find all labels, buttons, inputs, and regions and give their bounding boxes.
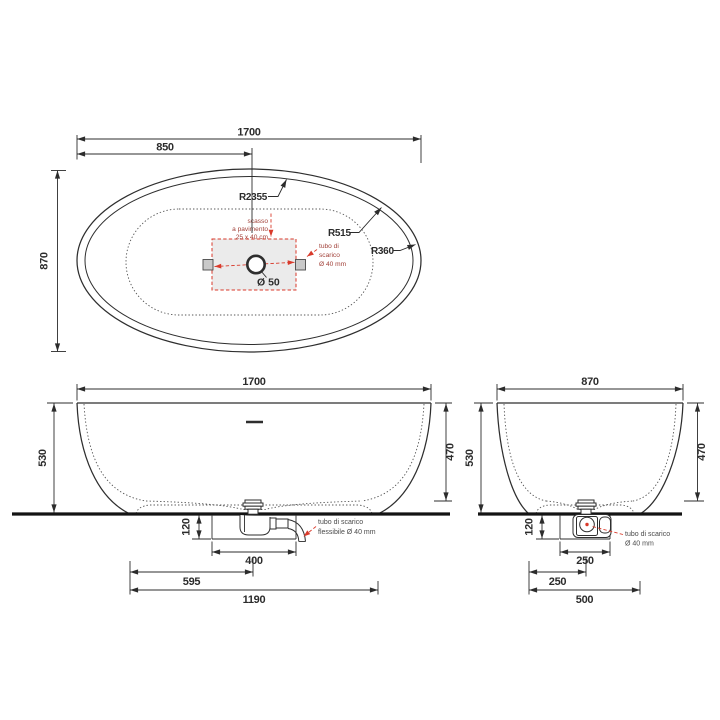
radius-side-leader <box>268 180 287 197</box>
side-dim-inner-depth: 470 <box>684 403 708 501</box>
front-drain-waste <box>243 500 263 514</box>
top-dim-depth: 870 <box>39 171 67 352</box>
radius-inner-leader <box>350 208 382 233</box>
front-dim-height-label: 530 <box>37 449 49 467</box>
side-dim-width: 870 <box>497 376 683 401</box>
bathtub-technical-drawing: Ø 50 scasso a pavimento 25 x 40 cm tubo … <box>0 0 720 720</box>
side-dim-height-label: 530 <box>464 449 476 467</box>
top-dim-width-label: 1700 <box>237 127 260 139</box>
front-dim-width: 1700 <box>77 376 431 401</box>
drain-hole <box>247 256 264 273</box>
front-inner-right <box>362 404 424 501</box>
side-inner-right <box>633 404 676 501</box>
side-drain-waste <box>576 500 596 514</box>
drain-pipe-left-marker <box>203 260 213 271</box>
drain-note-line1: tubo di <box>319 243 339 250</box>
top-dim-half-width-label: 850 <box>156 142 174 154</box>
side-dim-recess-depth: 120 <box>524 516 560 540</box>
drain-point-marker <box>585 523 588 526</box>
side-dim-recess-depth-label: 120 <box>524 518 536 536</box>
front-dim-recess-depth: 120 <box>181 516 212 540</box>
front-right-profile <box>378 403 431 514</box>
side-left-profile <box>497 403 529 514</box>
side-dim-height: 530 <box>464 403 493 513</box>
front-dim-base-width-label: 1190 <box>243 594 266 606</box>
hose-note-line1: tubo di scarico <box>318 519 363 526</box>
hose-note-leader <box>304 527 317 537</box>
top-view: Ø 50 scasso a pavimento 25 x 40 cm tubo … <box>39 127 422 353</box>
drain-hole-label: Ø 50 <box>257 277 280 289</box>
side-drain-note-line2: Ø 40 mm <box>625 541 654 548</box>
side-dim-base-width: 500 <box>529 581 640 606</box>
side-dim-drain-offset-label: 250 <box>549 576 567 588</box>
side-dim-recess-width: 250 <box>560 542 610 568</box>
front-view: tubo di scarico flessibile Ø 40 mm 1700 … <box>12 376 457 606</box>
front-dim-inner-depth-label: 470 <box>445 443 457 461</box>
drawing-canvas: Ø 50 scasso a pavimento 25 x 40 cm tubo … <box>0 0 720 720</box>
side-dim-width-label: 870 <box>581 376 599 388</box>
top-dim-depth-label: 870 <box>39 252 51 270</box>
front-dim-recess-depth-label: 120 <box>181 518 193 536</box>
drain-note-line3: Ø 40 mm <box>319 261 347 268</box>
front-dim-drain-offset-label: 595 <box>183 576 201 588</box>
side-siphon-trap <box>573 515 611 538</box>
radius-inner-label: R515 <box>328 228 351 239</box>
recess-note-line2: a pavimento <box>232 226 268 233</box>
side-right-profile <box>640 403 683 514</box>
drain-note-line2: scarico <box>319 252 340 259</box>
recess-note-line1: scasso <box>247 218 268 225</box>
recess-note-line3: 25 x 40 cm <box>236 234 269 241</box>
front-left-profile <box>77 403 130 514</box>
side-dim-base-width-label: 500 <box>576 594 594 606</box>
front-dim-recess-width: 400 <box>212 542 296 568</box>
drain-pipe-right-marker <box>296 260 306 271</box>
top-dim-half-width: 850 <box>77 142 252 234</box>
side-dim-inner-depth-label: 470 <box>696 443 708 461</box>
side-inner-left <box>504 404 546 501</box>
side-drain-note-line1: tubo di scarico <box>625 531 670 538</box>
flex-hose-outer <box>288 520 306 542</box>
front-dim-inner-depth: 470 <box>434 403 457 501</box>
flex-hose-inner <box>288 529 299 542</box>
drain-note-leader <box>307 250 317 257</box>
top-dim-width: 1700 <box>77 127 421 164</box>
front-dim-width-label: 1700 <box>242 376 265 388</box>
side-dim-recess-width-label: 250 <box>576 555 594 567</box>
front-dim-drain-offset: 595 <box>130 557 253 595</box>
side-view: tubo di scarico Ø 40 mm 870 530 470 120 <box>464 376 708 606</box>
front-dim-height: 530 <box>37 403 73 513</box>
radius-side-label: R2355 <box>239 192 268 203</box>
front-dim-recess-width-label: 400 <box>245 555 263 567</box>
radius-end-label: R360 <box>371 246 394 257</box>
hose-note-line2: flessibile Ø 40 mm <box>318 529 376 536</box>
front-inner-left <box>84 404 146 501</box>
front-dim-base-width: 1190 <box>130 581 378 606</box>
